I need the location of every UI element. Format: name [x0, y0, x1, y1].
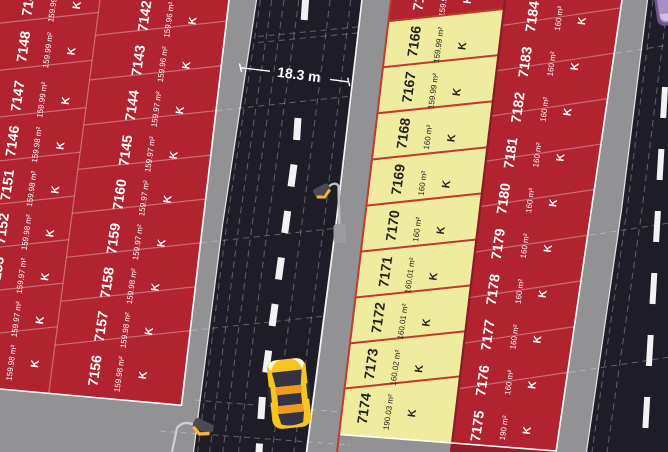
svg-text:K: K — [462, 0, 475, 5]
svg-text:K: K — [66, 46, 79, 56]
svg-text:K: K — [174, 105, 187, 115]
svg-text:K: K — [420, 318, 433, 328]
svg-text:K: K — [554, 153, 567, 163]
svg-text:K: K — [29, 359, 42, 369]
svg-text:K: K — [149, 282, 162, 292]
svg-text:K: K — [34, 315, 47, 325]
svg-text:K: K — [49, 185, 62, 195]
svg-text:K: K — [547, 198, 560, 208]
svg-text:K: K — [168, 150, 181, 160]
svg-text:K: K — [446, 133, 459, 143]
svg-text:K: K — [576, 16, 589, 26]
svg-text:K: K — [60, 96, 73, 106]
svg-text:K: K — [456, 41, 469, 51]
svg-text:K: K — [435, 226, 448, 236]
svg-text:K: K — [532, 335, 545, 345]
svg-text:K: K — [542, 244, 555, 254]
svg-text:K: K — [428, 272, 441, 282]
svg-text:K: K — [54, 141, 67, 151]
svg-text:K: K — [569, 62, 582, 72]
svg-text:K: K — [71, 0, 84, 10]
svg-text:K: K — [521, 426, 534, 436]
svg-text:K: K — [155, 238, 168, 248]
svg-text:K: K — [137, 370, 150, 380]
svg-text:K: K — [537, 289, 550, 299]
svg-text:K: K — [44, 228, 57, 238]
svg-text:K: K — [440, 179, 453, 189]
svg-text:K: K — [451, 87, 464, 97]
svg-text:K: K — [526, 380, 539, 390]
svg-text:K: K — [180, 60, 193, 70]
